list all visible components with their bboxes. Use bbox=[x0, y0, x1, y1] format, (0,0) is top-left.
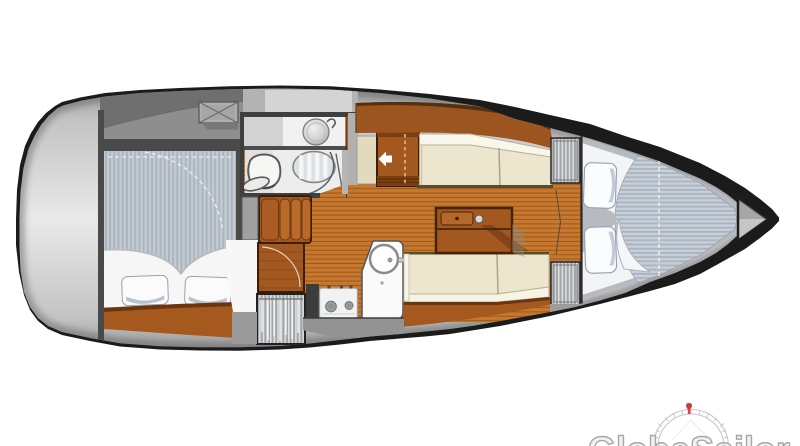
svg-text:GlobeSailor: GlobeSailor bbox=[588, 429, 790, 446]
